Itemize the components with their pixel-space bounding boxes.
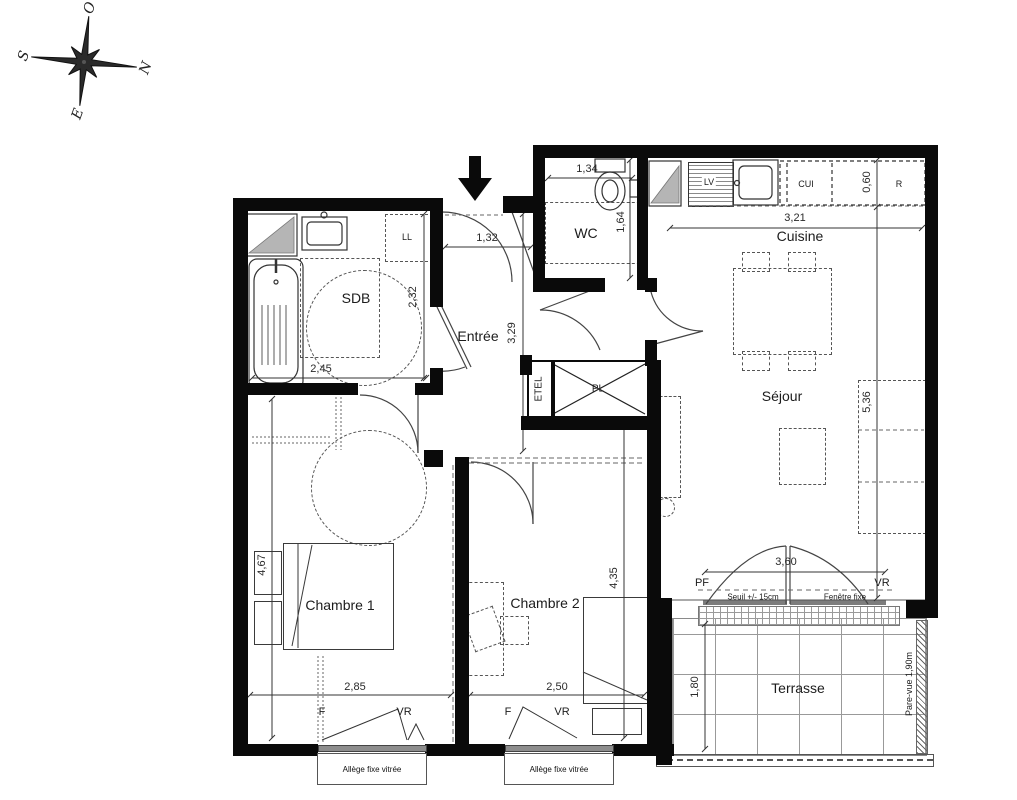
window-label-f-chambre1: F (319, 706, 326, 718)
dim-counter-depth: 0,60 (861, 171, 873, 192)
sill-note-chambre2: Allège fixe vitrée (504, 753, 614, 785)
room-label-sdb: SDB (342, 290, 371, 306)
wall (637, 158, 648, 290)
dim-bay-width: 3,60 (775, 556, 796, 568)
fridge-label: R (896, 179, 903, 189)
wall (645, 278, 657, 292)
wall (656, 752, 672, 765)
bed-lines (292, 543, 647, 700)
wall (533, 145, 938, 158)
dimension-lines (247, 157, 925, 752)
wall (520, 355, 532, 375)
floor-plan: O N S E (0, 0, 1017, 800)
dim-entree-height: 3,29 (506, 322, 518, 343)
sill-note-text: Allège fixe vitrée (524, 765, 594, 774)
wall (425, 744, 505, 756)
dim-entree-width: 1,32 (476, 232, 497, 244)
wall (533, 278, 605, 292)
room-label-cuisine: Cuisine (777, 228, 824, 244)
dim-sdb-height: 2,32 (407, 286, 419, 307)
room-label-pl: PL (592, 384, 604, 395)
wall (656, 598, 672, 620)
window-chambre2 (505, 745, 614, 752)
dishwasher-label: LV (702, 177, 716, 187)
dim-wc-height: 1,64 (615, 211, 627, 232)
fixtures (247, 159, 925, 389)
wall (430, 368, 443, 395)
wall (233, 744, 318, 756)
wall (656, 618, 672, 758)
room-label-wc: WC (574, 225, 597, 241)
room-label-terrasse: Terrasse (771, 680, 825, 696)
wall (906, 600, 925, 618)
cooker-label: CUI (798, 179, 814, 189)
shutter-label-chambre2: VR (554, 706, 569, 718)
threshold-note: Seuil +/- 15cm (727, 593, 778, 602)
window-opening-marks (322, 707, 577, 740)
sill-note-chambre1: Allège fixe vitrée (317, 753, 427, 785)
bay-door-label-pf: PF (695, 577, 709, 589)
dim-chambre2-height: 4,35 (608, 567, 620, 588)
dim-chambre2-width: 2,50 (546, 681, 567, 693)
sill-note-text: Allège fixe vitrée (337, 765, 407, 774)
room-label-chambre2: Chambre 2 (510, 595, 579, 611)
dim-chambre1-width: 2,85 (344, 681, 365, 693)
privacy-screen-label: Pare-vue 1,90m (904, 652, 914, 716)
wall (455, 457, 469, 756)
window-label-f-chambre2: F (505, 706, 512, 718)
wall (424, 450, 443, 467)
room-label-sejour: Séjour (762, 388, 802, 404)
dim-terrasse-depth: 1,80 (689, 676, 701, 697)
shutter-label-sejour: VR (874, 577, 889, 589)
wall (233, 198, 443, 211)
dim-wc-width: 1,34 (576, 163, 597, 175)
dim-sejour-height: 5,36 (861, 391, 873, 412)
dim-sdb-width: 2,45 (310, 363, 331, 375)
room-label-entree: Entrée (457, 328, 498, 344)
dim-cuisine-width: 3,21 (784, 212, 805, 224)
washing-machine-label: LL (402, 232, 412, 242)
room-label-chambre1: Chambre 1 (305, 597, 374, 613)
wall (533, 158, 545, 288)
dim-chambre1-height: 4,67 (256, 554, 268, 575)
wall (925, 145, 938, 618)
shutter-label-chambre1: VR (396, 706, 411, 718)
entry-arrow (458, 156, 492, 201)
wall (521, 416, 660, 430)
room-label-etel: ETEL (534, 376, 545, 401)
window-chambre1 (318, 745, 427, 752)
wall (430, 210, 443, 307)
wall (233, 198, 248, 756)
fixed-window-note: Fenêtre fixe (824, 593, 866, 602)
wall (233, 383, 358, 395)
